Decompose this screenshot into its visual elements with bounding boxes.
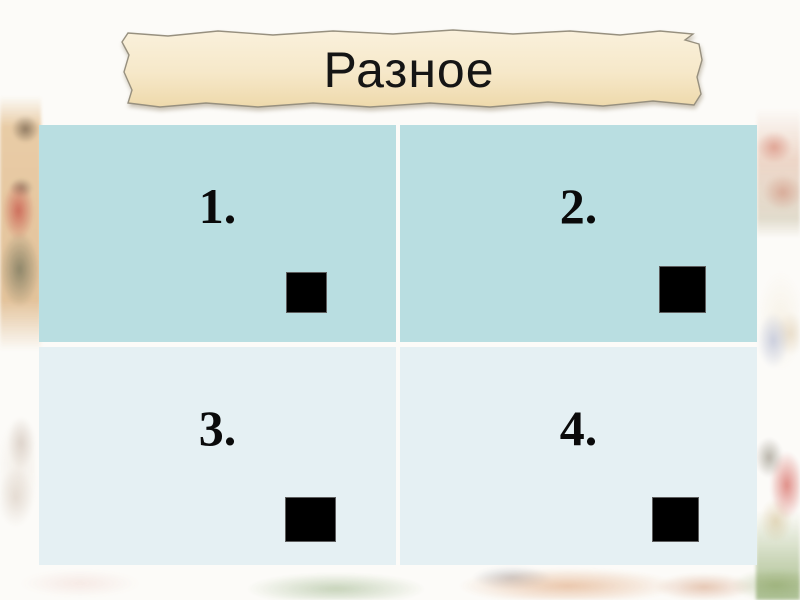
question-grid: 1. 2. 3. 4. (39, 125, 757, 565)
question-cell-2[interactable]: 2. (400, 125, 757, 342)
black-square[interactable] (659, 266, 706, 313)
question-number[interactable]: 4. (400, 403, 757, 453)
decoration-trinity-icon-painting (757, 238, 800, 403)
black-square[interactable] (652, 497, 699, 542)
question-number[interactable]: 1. (39, 181, 396, 231)
black-square[interactable] (286, 272, 327, 313)
decoration-castle-painting (0, 563, 800, 600)
question-cell-1[interactable]: 1. (39, 125, 396, 342)
decoration-church-painting (0, 385, 35, 550)
question-cell-3[interactable]: 3. (39, 347, 396, 565)
question-number[interactable]: 2. (400, 181, 757, 231)
quiz-slide: Разное 1. 2. 3. 4. (0, 0, 800, 600)
title-banner: Разное (108, 20, 710, 116)
question-number[interactable]: 3. (39, 403, 396, 453)
decoration-scribe-painting (0, 96, 41, 351)
category-title: Разное (108, 20, 710, 116)
decoration-warrior-painting (756, 402, 800, 600)
question-cell-4[interactable]: 4. (400, 347, 757, 565)
black-square[interactable] (285, 497, 336, 542)
decoration-battle-painting (757, 108, 800, 238)
